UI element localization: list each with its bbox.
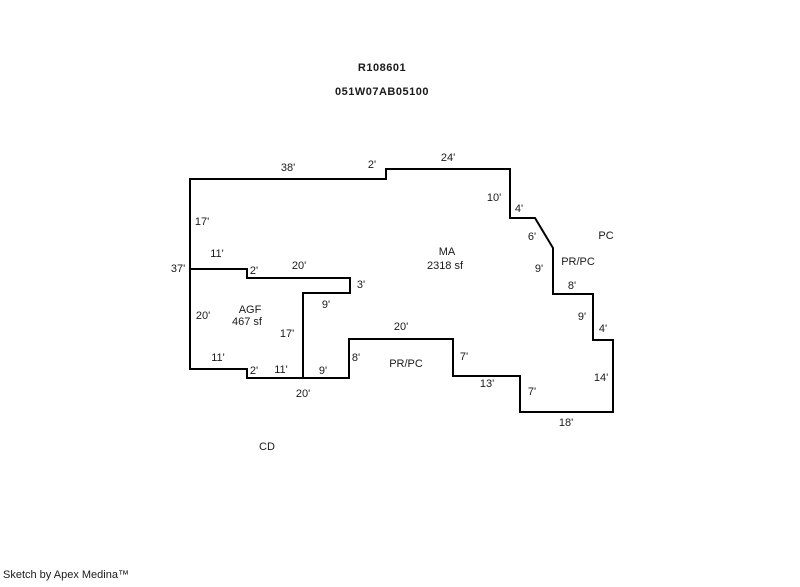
area-label: CD	[259, 441, 275, 453]
dimension-label: 2'	[250, 265, 258, 277]
dimension-label: 2'	[250, 365, 258, 377]
area-label: 2318 sf	[427, 260, 464, 272]
dimension-label: 4'	[599, 323, 607, 335]
dimension-label: 38'	[281, 162, 295, 174]
sketch-page: R108601 051W07AB05100 38'2'24'10'4'6'9'8…	[0, 0, 800, 587]
dimension-label: 20'	[292, 260, 306, 272]
dimension-label: 6'	[528, 231, 536, 243]
dimension-label: 20'	[296, 388, 310, 400]
dimension-label: 11'	[211, 352, 225, 364]
dimension-label: 7'	[460, 351, 468, 363]
area-label: PC	[598, 230, 613, 242]
dimension-label: 2'	[368, 159, 376, 171]
dimension-label: 3'	[357, 279, 365, 291]
dimension-label: 8'	[568, 280, 576, 292]
area-label: AGF	[239, 304, 262, 316]
area-label: 467 sf	[232, 316, 263, 328]
dimension-label: 11'	[274, 364, 288, 376]
dimension-label: 14'	[594, 372, 608, 384]
dimension-label: 13'	[480, 378, 494, 390]
dimension-label: 24'	[441, 152, 455, 164]
dimension-label: 18'	[559, 417, 573, 429]
dimension-label: 17'	[280, 328, 294, 340]
building-sketch-canvas: 38'2'24'10'4'6'9'8'9'4'14'7'18'13'7'20'8…	[0, 0, 800, 587]
dimension-label: 7'	[528, 386, 536, 398]
dimension-label: 8'	[352, 352, 360, 364]
dimension-label: 17'	[195, 216, 209, 228]
dimension-label: 9'	[535, 263, 543, 275]
dimension-label: 9'	[319, 365, 327, 377]
dimension-label: 20'	[394, 321, 408, 333]
dimension-label: 9'	[322, 299, 330, 311]
dimension-label: 9'	[578, 311, 586, 323]
dimension-label: 37'	[171, 263, 185, 275]
area-label: PR/PC	[561, 256, 595, 268]
area-label: MA	[439, 246, 456, 258]
dimension-label: 11'	[210, 248, 224, 260]
dimension-label: 10'	[487, 192, 501, 204]
area-label: PR/PC	[389, 358, 423, 370]
dimension-label: 4'	[515, 203, 523, 215]
sketch-credit: Sketch by Apex Medina™	[3, 569, 129, 581]
dimension-label: 20'	[196, 310, 210, 322]
